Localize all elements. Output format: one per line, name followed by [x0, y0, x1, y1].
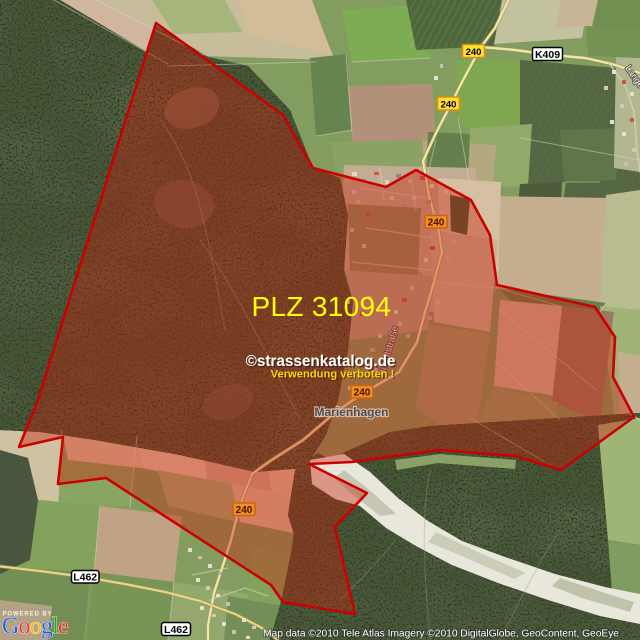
svg-text:L462: L462	[73, 572, 97, 584]
svg-text:L462: L462	[164, 624, 188, 636]
svg-text:PLZ 31094: PLZ 31094	[252, 291, 392, 322]
svg-text:240: 240	[466, 47, 482, 58]
svg-text:Map data ©2010 Tele Atlas Ima: Map data ©2010 Tele Atlas Imagery ©2010 …	[263, 629, 619, 640]
svg-text:240: 240	[441, 99, 457, 110]
svg-text:Marienhagen: Marienhagen	[314, 405, 388, 419]
svg-text:Google: Google	[2, 614, 68, 640]
svg-text:Verwendung verboten !: Verwendung verboten !	[271, 369, 395, 381]
svg-text:©strassenkatalog.de: ©strassenkatalog.de	[246, 353, 396, 370]
svg-text:K409: K409	[535, 49, 560, 61]
